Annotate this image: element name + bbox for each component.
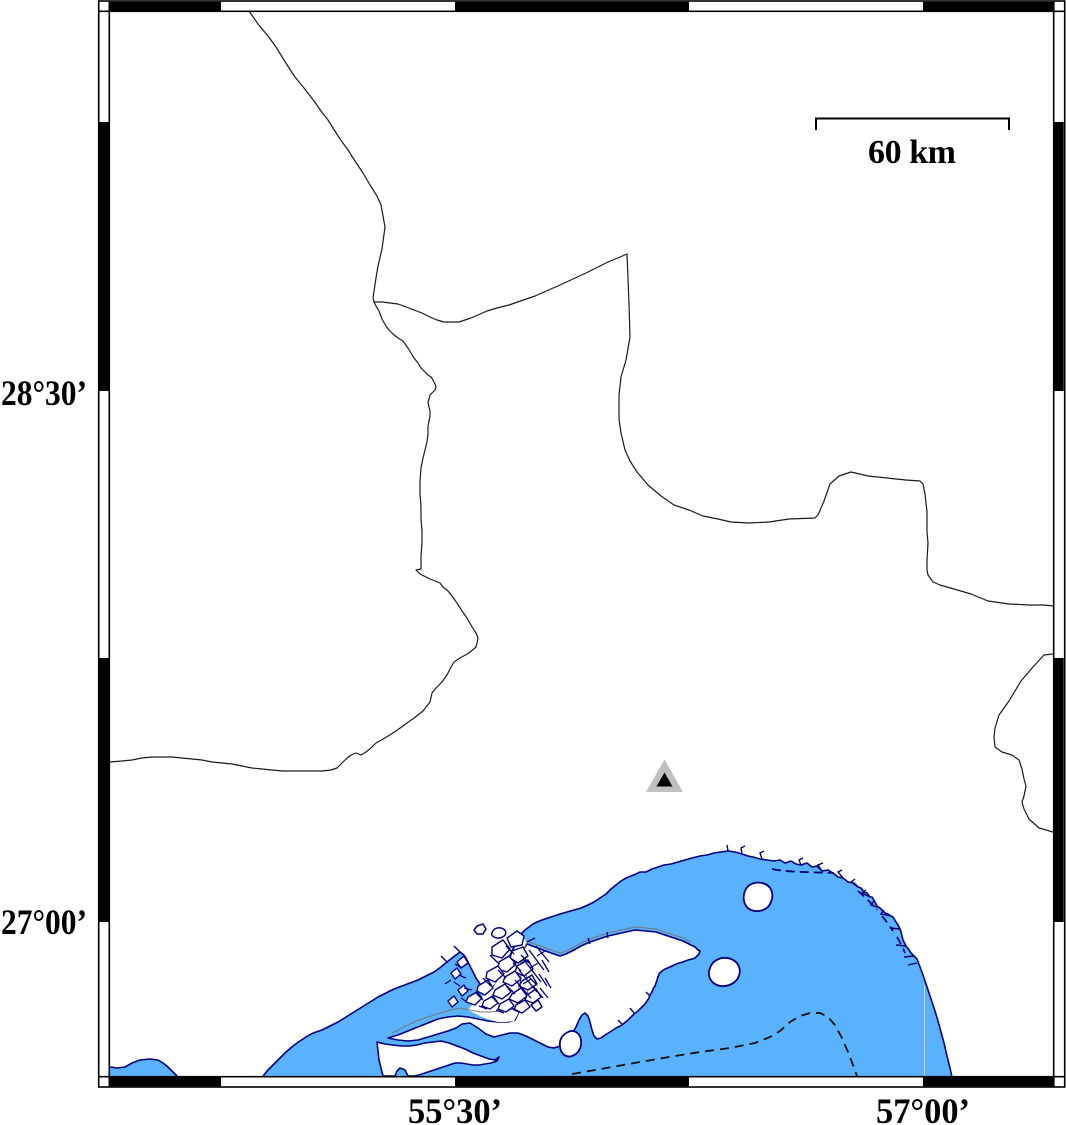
- svg-text:57°00’: 57°00’: [876, 1091, 970, 1125]
- svg-text:55°30’: 55°30’: [408, 1091, 502, 1125]
- svg-text:27°00’: 27°00’: [1, 902, 87, 942]
- svg-text:28°30’: 28°30’: [1, 373, 87, 413]
- svg-text:60 km: 60 km: [868, 134, 956, 171]
